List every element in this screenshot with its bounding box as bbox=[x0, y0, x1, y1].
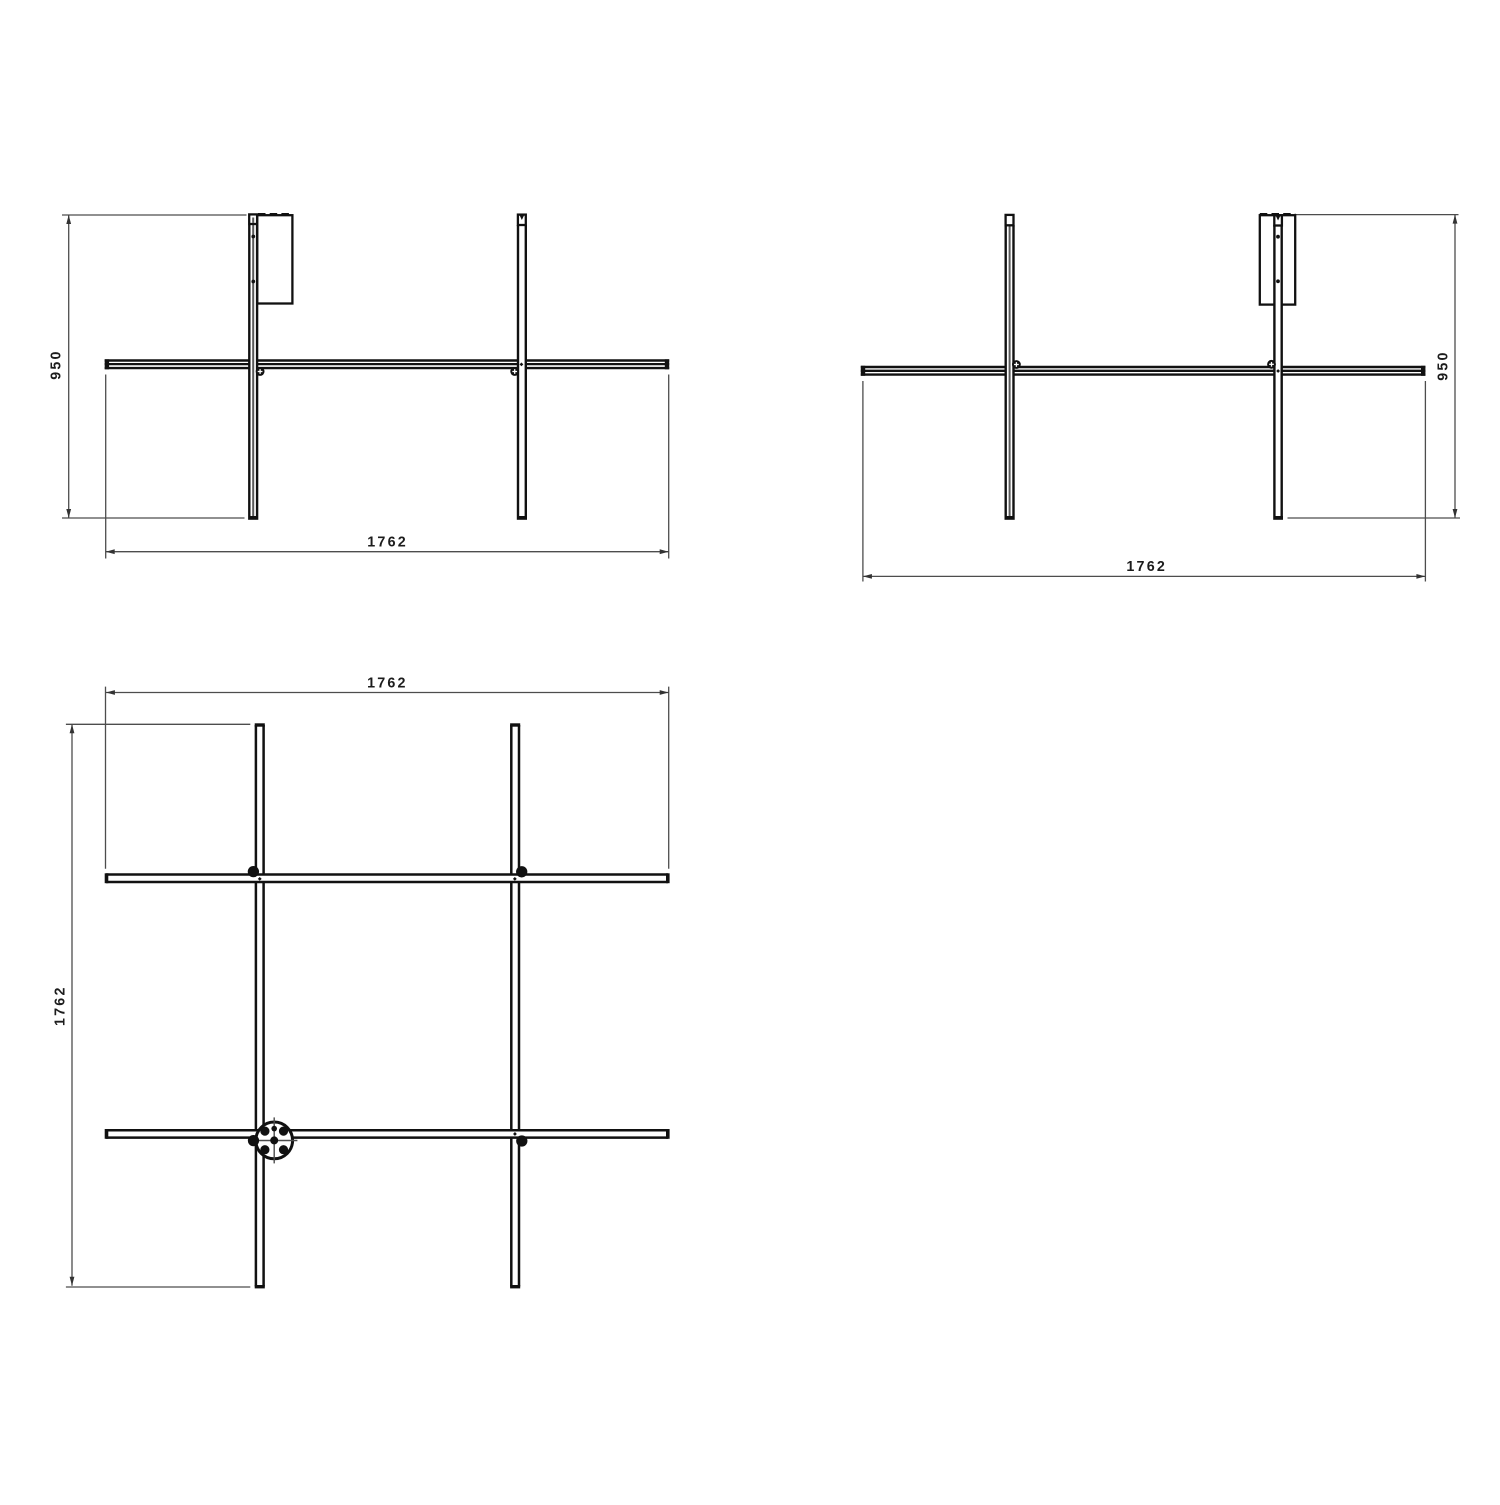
svg-text:1762: 1762 bbox=[1126, 559, 1167, 575]
svg-text:1762: 1762 bbox=[367, 535, 408, 551]
svg-text:950: 950 bbox=[49, 349, 65, 379]
svg-text:1762: 1762 bbox=[53, 985, 69, 1026]
svg-text:1762: 1762 bbox=[367, 675, 408, 691]
svg-text:950: 950 bbox=[1436, 350, 1452, 380]
